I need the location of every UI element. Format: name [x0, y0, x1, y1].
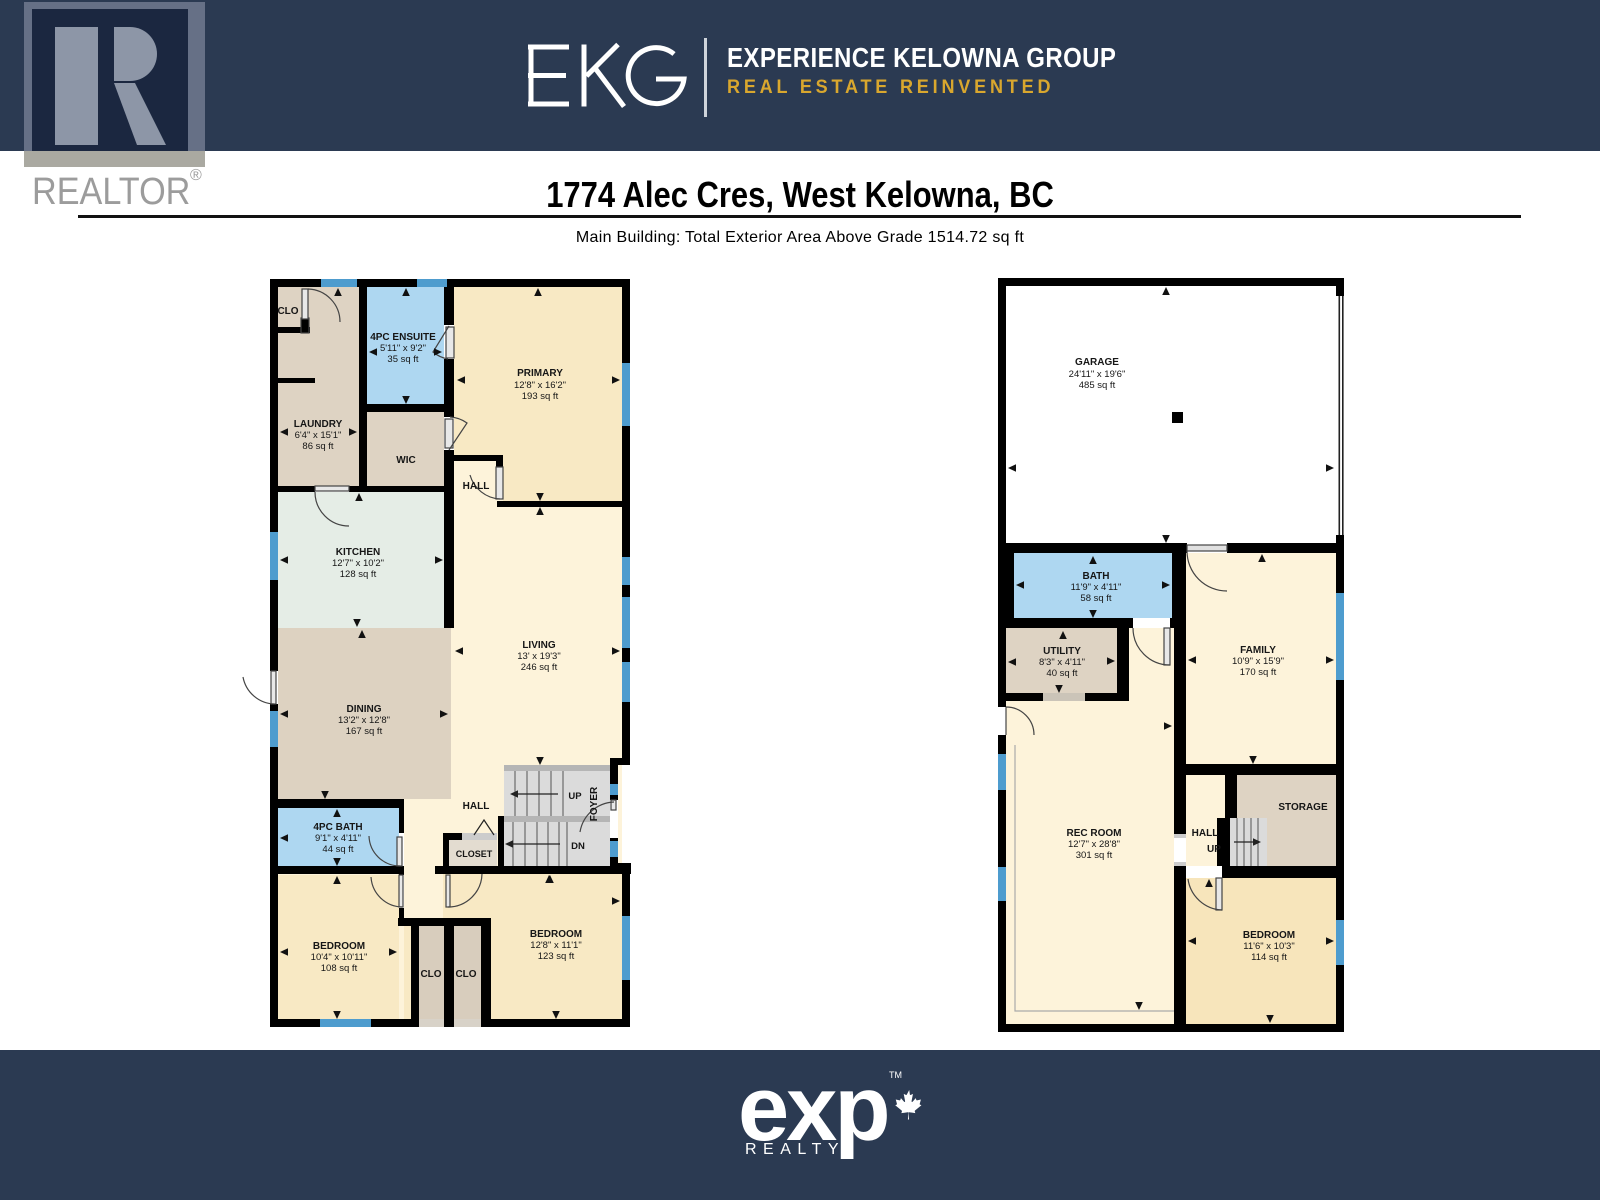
svg-text:170 sq ft: 170 sq ft [1240, 667, 1277, 678]
svg-text:12'8" x 16'2": 12'8" x 16'2" [514, 380, 566, 391]
svg-text:BATH: BATH [1082, 571, 1109, 582]
svg-text:STORAGE: STORAGE [1278, 802, 1328, 813]
svg-text:167 sq ft: 167 sq ft [346, 726, 383, 737]
svg-text:PRIMARY: PRIMARY [517, 368, 563, 379]
svg-text:FOYER: FOYER [589, 786, 600, 821]
svg-text:35 sq ft: 35 sq ft [387, 354, 419, 365]
svg-text:WIC: WIC [396, 455, 415, 466]
svg-text:86 sq ft: 86 sq ft [302, 441, 334, 452]
svg-text:BEDROOM: BEDROOM [1243, 930, 1295, 941]
svg-text:KITCHEN: KITCHEN [336, 547, 380, 558]
svg-text:DINING: DINING [347, 704, 382, 715]
svg-text:HALL: HALL [463, 801, 490, 812]
svg-text:CLO: CLO [277, 306, 298, 317]
svg-text:DN: DN [571, 841, 585, 852]
svg-text:UP: UP [568, 791, 582, 802]
svg-text:40 sq ft: 40 sq ft [1046, 668, 1078, 679]
svg-text:CLOSET: CLOSET [456, 849, 493, 859]
svg-text:58 sq ft: 58 sq ft [1080, 593, 1112, 604]
svg-text:12'7" x 10'2": 12'7" x 10'2" [332, 558, 384, 569]
svg-text:10'9" x 15'9": 10'9" x 15'9" [1232, 656, 1284, 667]
svg-text:123 sq ft: 123 sq ft [538, 951, 575, 962]
svg-text:246 sq ft: 246 sq ft [521, 662, 558, 673]
svg-text:CLO: CLO [455, 969, 476, 980]
svg-text:108 sq ft: 108 sq ft [321, 963, 358, 974]
svg-text:193 sq ft: 193 sq ft [522, 391, 559, 402]
svg-text:LIVING: LIVING [522, 640, 556, 651]
svg-text:UTILITY: UTILITY [1043, 646, 1081, 657]
svg-text:5'11" x 9'2": 5'11" x 9'2" [380, 343, 426, 354]
svg-text:114 sq ft: 114 sq ft [1251, 952, 1287, 963]
svg-text:CLO: CLO [420, 969, 441, 980]
svg-text:LAUNDRY: LAUNDRY [294, 419, 343, 430]
svg-text:6'4" x 15'1": 6'4" x 15'1" [295, 430, 342, 441]
svg-text:128 sq ft: 128 sq ft [340, 569, 377, 580]
svg-text:HALL: HALL [463, 481, 490, 492]
svg-text:4PC BATH: 4PC BATH [313, 822, 362, 833]
svg-text:12'7" x 28'8": 12'7" x 28'8" [1068, 839, 1120, 850]
svg-text:8'3" x 4'11": 8'3" x 4'11" [1039, 657, 1085, 668]
svg-text:BEDROOM: BEDROOM [530, 929, 582, 940]
svg-text:BEDROOM: BEDROOM [313, 941, 365, 952]
svg-text:9'1" x 4'11": 9'1" x 4'11" [315, 833, 361, 844]
svg-text:12'8" x 11'1": 12'8" x 11'1" [530, 940, 581, 951]
svg-text:301 sq ft: 301 sq ft [1076, 850, 1113, 861]
svg-text:GARAGE: GARAGE [1075, 357, 1119, 368]
svg-text:13' x 19'3": 13' x 19'3" [517, 651, 560, 662]
svg-text:FAMILY: FAMILY [1240, 645, 1276, 656]
svg-text:4PC ENSUITE: 4PC ENSUITE [370, 332, 436, 343]
svg-text:485 sq ft: 485 sq ft [1079, 380, 1116, 391]
svg-text:REC ROOM: REC ROOM [1067, 828, 1122, 839]
svg-text:11'6" x 10'3": 11'6" x 10'3" [1243, 941, 1294, 952]
svg-text:24'11" x 19'6": 24'11" x 19'6" [1069, 369, 1126, 380]
svg-text:10'4" x 10'11": 10'4" x 10'11" [311, 952, 368, 963]
svg-text:11'9" x 4'11": 11'9" x 4'11" [1071, 582, 1122, 593]
svg-text:UP: UP [1207, 844, 1221, 855]
svg-text:HALL: HALL [1192, 828, 1219, 839]
svg-text:13'2" x 12'8": 13'2" x 12'8" [338, 715, 390, 726]
svg-text:44 sq ft: 44 sq ft [322, 844, 354, 855]
